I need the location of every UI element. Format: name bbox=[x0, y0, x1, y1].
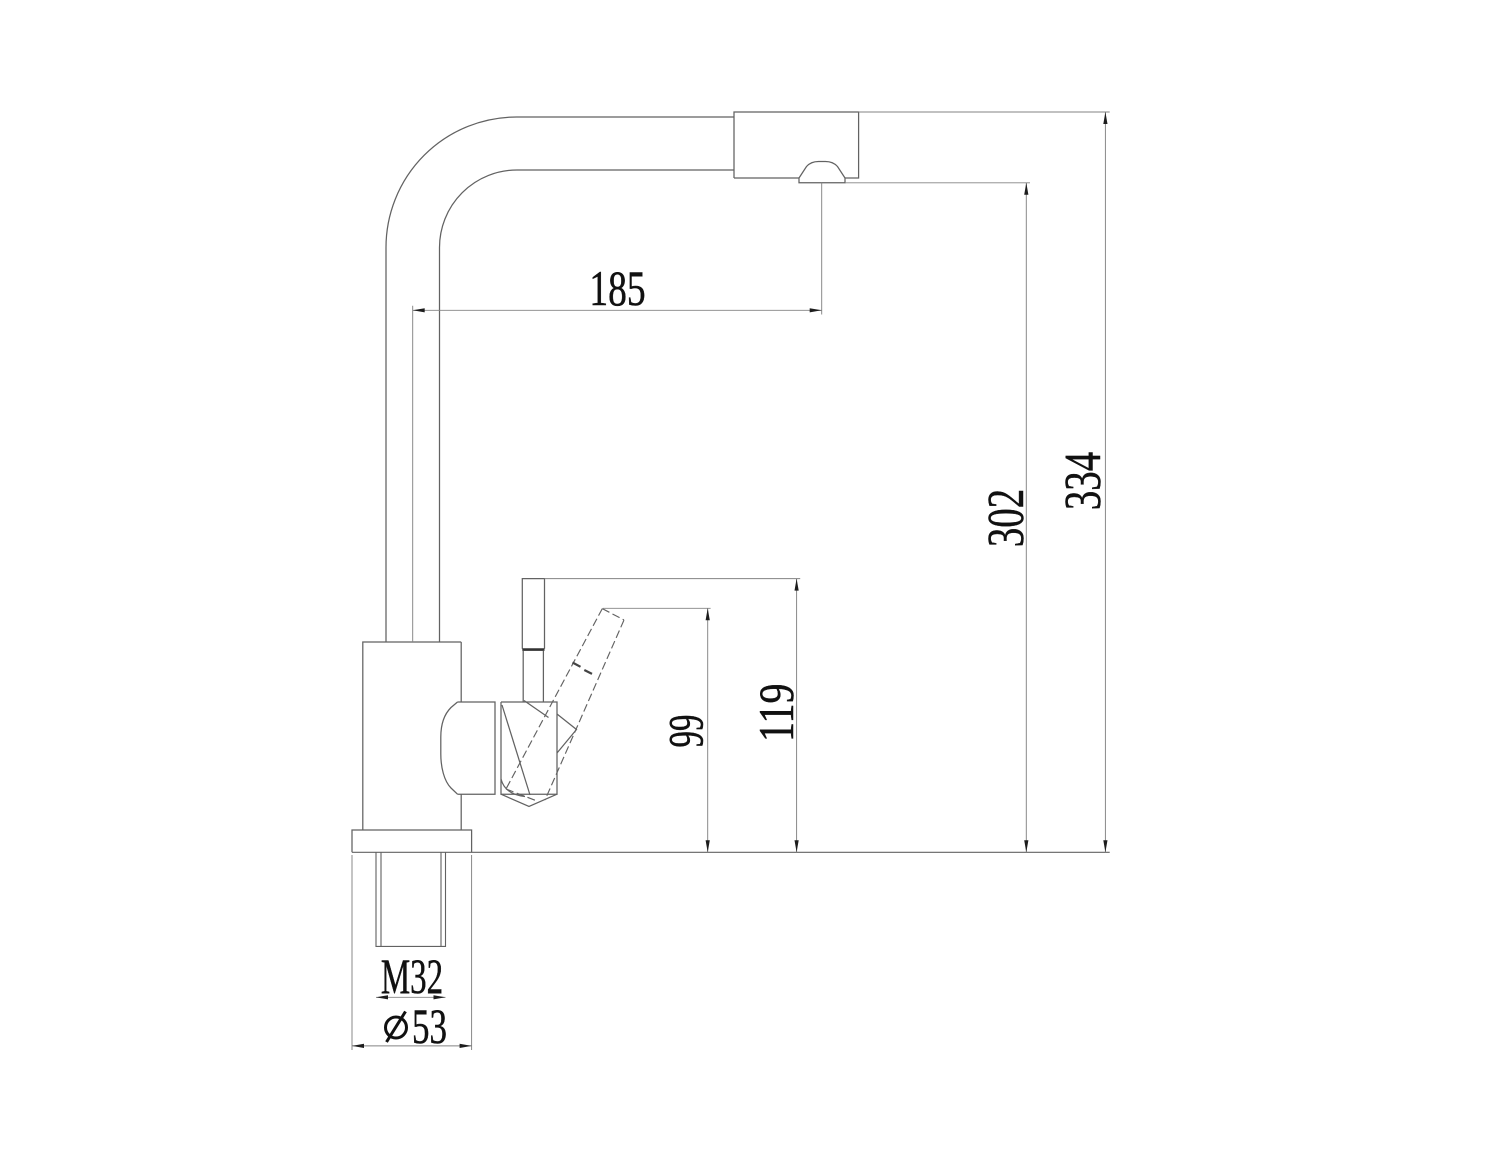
svg-text:302: 302 bbox=[977, 489, 1035, 547]
svg-text:M32: M32 bbox=[381, 949, 443, 1004]
svg-text:185: 185 bbox=[589, 261, 645, 316]
svg-text:334: 334 bbox=[1054, 452, 1112, 510]
svg-text:53: 53 bbox=[412, 1000, 447, 1054]
svg-text:119: 119 bbox=[749, 684, 804, 743]
svg-text:99: 99 bbox=[659, 715, 714, 748]
